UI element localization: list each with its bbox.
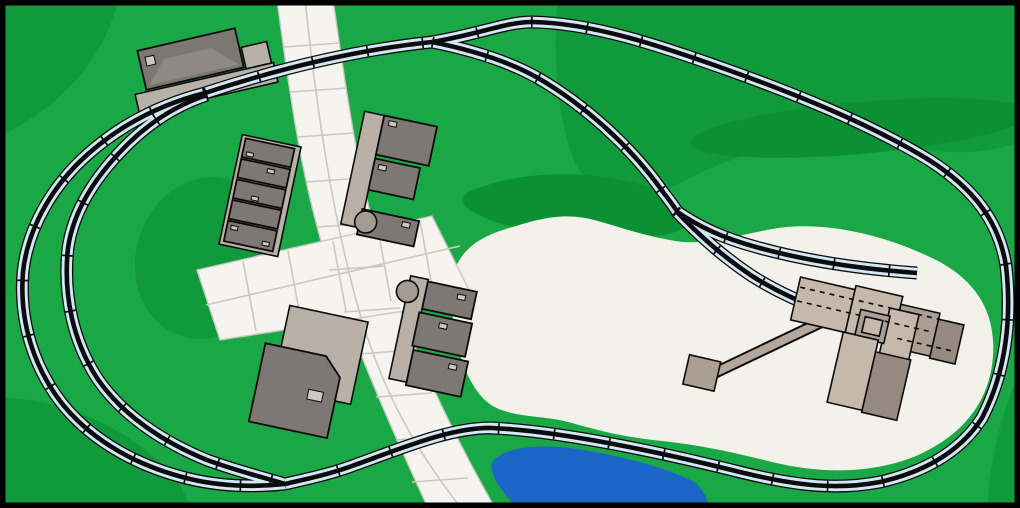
door-mark bbox=[378, 164, 387, 171]
plan-border-bottom bbox=[0, 503, 1020, 508]
door-mark bbox=[457, 294, 466, 301]
track-plan-svg bbox=[0, 0, 1020, 508]
door-mark bbox=[230, 225, 238, 230]
door-mark bbox=[402, 222, 411, 229]
door-mark bbox=[448, 364, 457, 371]
door-mark bbox=[439, 323, 448, 330]
door-mark bbox=[246, 152, 254, 157]
conveyor-pad bbox=[683, 355, 721, 391]
station-chimney bbox=[145, 55, 156, 66]
door-mark bbox=[388, 121, 397, 128]
door-mark bbox=[267, 169, 275, 174]
track-plan-canvas bbox=[0, 0, 1020, 508]
door-mark bbox=[251, 196, 259, 201]
door-mark bbox=[262, 241, 270, 246]
platform-annex bbox=[241, 42, 271, 69]
